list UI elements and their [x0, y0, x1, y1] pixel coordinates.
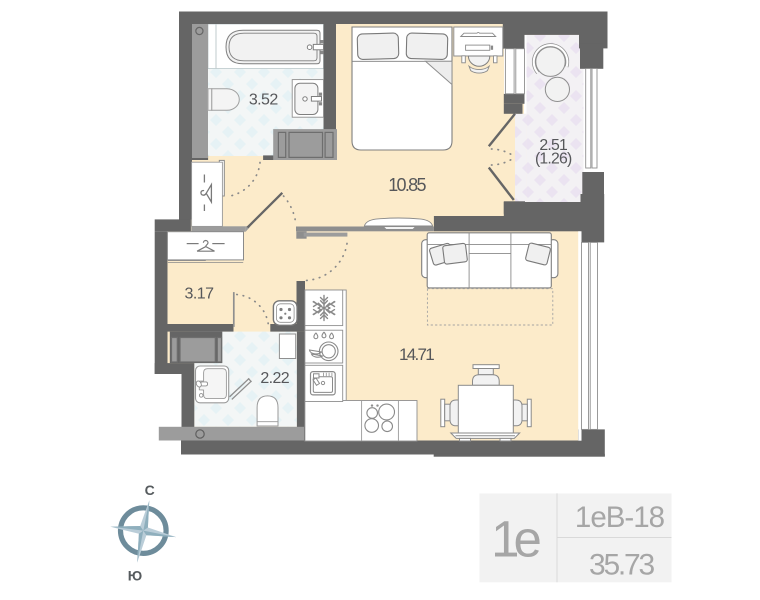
svg-text:(1.26): (1.26) [535, 151, 572, 168]
svg-text:35.73: 35.73 [589, 549, 655, 582]
svg-text:С: С [145, 482, 155, 498]
svg-text:1е: 1е [491, 511, 540, 568]
svg-text:3.17: 3.17 [185, 286, 215, 303]
svg-text:3.52: 3.52 [249, 91, 279, 108]
svg-text:2.22: 2.22 [260, 370, 289, 387]
svg-text:Ю: Ю [128, 568, 142, 584]
svg-text:14.71: 14.71 [399, 345, 434, 364]
svg-text:10.85: 10.85 [388, 175, 426, 195]
svg-text:1еВ-18: 1еВ-18 [575, 501, 665, 534]
